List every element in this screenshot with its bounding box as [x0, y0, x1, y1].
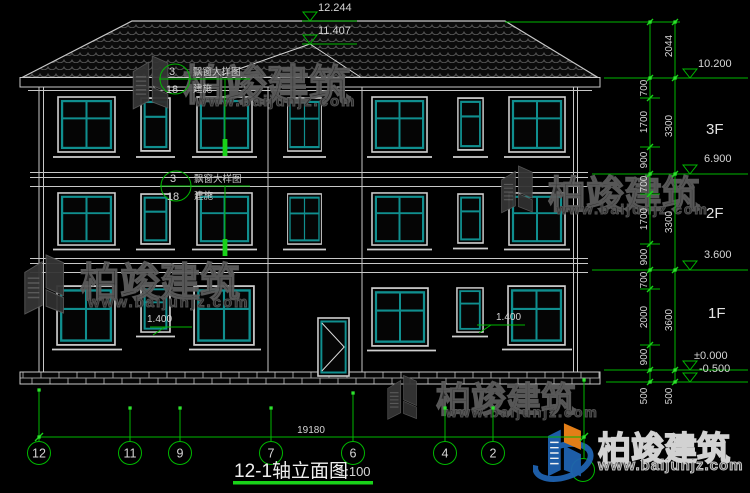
ridge-elevation-marker: 12.244 11.407 — [302, 2, 357, 44]
svg-text:900: 900 — [639, 348, 650, 365]
svg-text:700: 700 — [639, 271, 650, 288]
drawing-title-block: 12-1轴立面图 1:100 — [233, 460, 373, 485]
floor-label-2f: 2F — [706, 205, 724, 222]
f2-elevation: 3.600 — [704, 249, 732, 261]
axis-label: 12 — [32, 447, 46, 461]
sill-height-label: 1.400 — [496, 312, 521, 323]
callout-title: 飘窗大样图 — [193, 66, 241, 78]
callout-sheet: 18 — [167, 191, 179, 203]
axis-label: 6 — [350, 447, 357, 461]
svg-text:1700: 1700 — [639, 207, 650, 230]
svg-text:3300: 3300 — [664, 210, 675, 233]
callout-ref: 建施 — [194, 190, 214, 202]
svg-text:3600: 3600 — [664, 308, 675, 331]
callout-number: 3 — [170, 173, 176, 185]
drawing-scale: 1:100 — [338, 464, 371, 479]
callout-sheet: 18 — [166, 84, 178, 96]
svg-text:900: 900 — [639, 151, 650, 168]
axis-label: 11 — [124, 447, 137, 461]
svg-text:2044: 2044 — [664, 34, 675, 57]
gable-elevation: 11.407 — [318, 25, 351, 37]
axis-label: 2 — [490, 447, 497, 461]
bottom-dimension: 19180 — [35, 380, 588, 458]
f3-elevation: 6.900 — [704, 153, 732, 165]
ridge-elevation: 12.244 — [318, 2, 352, 14]
svg-text:700: 700 — [639, 175, 650, 192]
floor-label-1f: 1F — [708, 305, 726, 322]
svg-text:2000: 2000 — [639, 305, 650, 328]
detail-callout-2f: 3 18 飘窗大样图 建施 — [160, 171, 250, 256]
callout-ref: 建施 — [193, 83, 213, 95]
svg-text:900: 900 — [639, 248, 650, 265]
svg-text:700: 700 — [639, 79, 650, 96]
sill-height-left: 1.400 — [147, 314, 192, 335]
cad-elevation-drawing: 柏竣建筑 www.baijunjz.com 柏竣建筑 www.baijunjz.… — [0, 0, 750, 493]
axis-label: 9 — [177, 447, 184, 461]
right-elevation-markers: 10.200 6.900 3.600 ±0.000 -0.500 3F 2F 1… — [683, 58, 732, 382]
overall-width-label: 19180 — [297, 425, 325, 436]
svg-text:3300: 3300 — [664, 114, 675, 137]
sill-height-right: 1.400 — [477, 312, 525, 333]
svg-text:1700: 1700 — [639, 110, 650, 133]
detail-callout-3f: 3 18 飘窗大样图 建施 — [159, 64, 250, 156]
base-elevation: -0.500 — [699, 363, 730, 375]
callout-number: 3 — [169, 66, 175, 78]
title-underline — [233, 481, 373, 485]
callout-title: 飘窗大样图 — [194, 173, 242, 185]
ground-elevation: ±0.000 — [694, 350, 728, 362]
sill-height-label: 1.400 — [147, 314, 172, 325]
drawing-title: 12-1轴立面图 — [234, 460, 348, 482]
axis-label: 4 — [442, 447, 449, 461]
outer-dimension-labels: 2044 3300 3300 3600 500 — [664, 34, 675, 404]
svg-text:500: 500 — [664, 387, 675, 404]
eave-elevation: 10.200 — [698, 58, 732, 70]
axis-label: 7 — [268, 447, 275, 461]
inner-dimension-labels: 700 1700 900 700 1700 900 700 2000 900 5… — [639, 79, 650, 404]
floor-label-3f: 3F — [706, 121, 724, 138]
annotation-layer: 12.244 11.407 700 1700 900 700 1700 900 … — [0, 0, 750, 493]
svg-text:500: 500 — [639, 387, 650, 404]
